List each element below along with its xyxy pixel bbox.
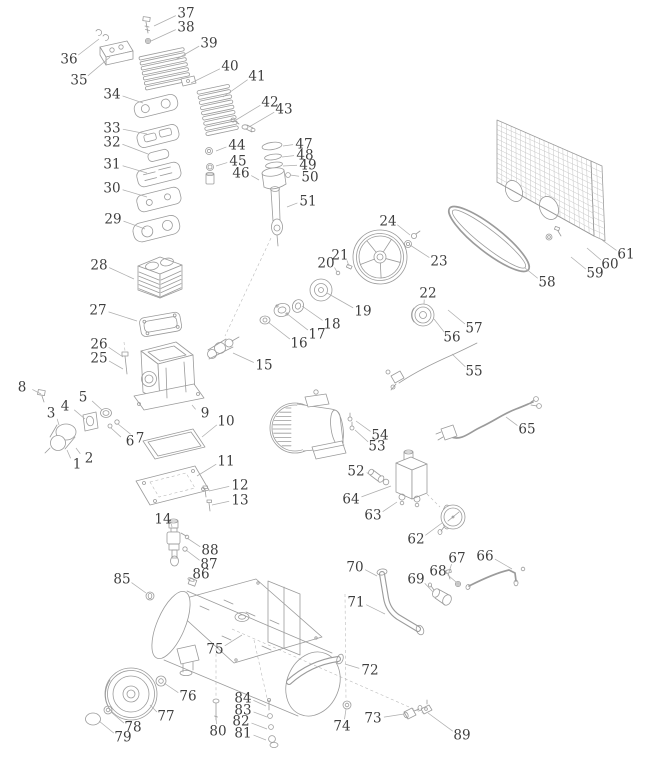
part-number-54: 54 [371, 428, 388, 444]
leader-line-27 [109, 312, 137, 321]
part-number-41: 41 [248, 69, 265, 85]
nuts-44-45-46 [206, 148, 215, 185]
part-number-80: 80 [209, 724, 226, 740]
part-number-73: 73 [364, 711, 381, 727]
leader-line-76 [164, 683, 178, 693]
leader-line-35 [88, 57, 110, 76]
part-number-43: 43 [275, 102, 292, 118]
part-number-29: 29 [104, 212, 121, 228]
leader-line-7 [118, 424, 131, 434]
part-number-51: 51 [299, 194, 316, 210]
part-number-24: 24 [379, 214, 396, 230]
leader-line-30 [123, 190, 147, 197]
part-number-71: 71 [347, 595, 364, 611]
part-number-22: 22 [419, 286, 436, 302]
part-number-3: 3 [47, 406, 56, 422]
leader-line-15 [233, 353, 254, 362]
leader-line-89 [428, 713, 453, 731]
part-number-76: 76 [179, 689, 196, 705]
part-number-67: 67 [448, 551, 465, 567]
valve-plate-30 [135, 186, 182, 213]
drain-valve-73-89 [403, 700, 432, 719]
pressure-switch-63 [396, 450, 427, 507]
leader-line-84 [253, 700, 266, 706]
leader-line-71 [366, 605, 385, 614]
part-number-12: 12 [231, 478, 248, 494]
part-number-58: 58 [538, 275, 555, 291]
diagram-canvas: 1234567891011121314151617181920212223242… [0, 0, 656, 768]
leader-line-81 [254, 735, 266, 740]
part-number-61: 61 [617, 247, 634, 263]
leader-line-59 [571, 257, 586, 269]
leader-line-63 [383, 502, 397, 512]
part-number-64: 64 [342, 492, 359, 508]
motor-assembly [270, 390, 346, 459]
leader-line-82 [252, 723, 267, 729]
crankshaft-15 [208, 337, 240, 359]
leader-line-28 [109, 268, 134, 279]
leader-line-43 [249, 112, 274, 127]
part-number-23: 23 [430, 254, 447, 270]
part-number-40: 40 [221, 59, 238, 75]
check-valve-69 [428, 583, 453, 607]
leader-line-13 [212, 501, 229, 505]
part-number-31: 31 [103, 157, 120, 173]
part-number-38: 38 [177, 20, 194, 36]
part-number-57: 57 [465, 321, 482, 337]
leader-line-25 [109, 361, 123, 369]
leader-line-50 [290, 175, 299, 176]
part-number-28: 28 [90, 258, 107, 274]
part-number-33: 33 [103, 121, 120, 137]
leader-line-23 [410, 245, 429, 258]
part-number-10: 10 [217, 414, 234, 430]
cylinder-28 [138, 257, 182, 298]
clips-36 [96, 30, 109, 41]
belt-guard-59 [497, 120, 605, 241]
part-number-44: 44 [228, 138, 245, 154]
part-number-87: 87 [200, 557, 217, 573]
leader-line-45 [216, 163, 227, 166]
leader-line-5 [92, 401, 102, 410]
leader-line-51 [287, 203, 297, 207]
part-number-9: 9 [201, 406, 210, 422]
leader-line-68 [447, 575, 456, 582]
part-number-7: 7 [136, 431, 145, 447]
leader-line-49 [283, 165, 297, 166]
leader-line-47 [283, 145, 293, 146]
part-number-55: 55 [465, 364, 482, 380]
leader-line-12 [209, 486, 229, 491]
wheel-77 [105, 668, 157, 720]
gasket-plate-34 [133, 93, 180, 119]
hub-19 [310, 279, 332, 301]
base-plate-11 [136, 466, 209, 505]
part-number-25: 25 [90, 351, 107, 367]
part-number-6: 6 [126, 434, 135, 450]
leader-line-6 [111, 428, 121, 437]
valve-plate-31 [135, 161, 182, 188]
part-number-18: 18 [323, 317, 340, 333]
part-number-32: 32 [103, 135, 120, 151]
part-number-70: 70 [346, 560, 363, 576]
exploded-view-svg: 1234567891011121314151617181920212223242… [0, 0, 656, 768]
leader-line-53 [355, 430, 368, 442]
leader-line-18 [302, 306, 323, 320]
leader-line-48 [282, 156, 294, 157]
part-number-72: 72 [361, 663, 378, 679]
gasket-27 [139, 311, 183, 337]
bolts-25-26 [122, 342, 128, 374]
bolt-and-washer-37-38 [143, 17, 151, 44]
motor-bolts-53-54 [348, 413, 354, 430]
leader-line-85 [132, 583, 146, 593]
part-number-34: 34 [103, 87, 120, 103]
leader-line-88 [187, 538, 200, 547]
leader-line-36 [78, 39, 99, 55]
part-number-16: 16 [290, 336, 307, 352]
part-number-85: 85 [113, 572, 130, 588]
leader-line-61 [602, 240, 616, 250]
part-number-46: 46 [232, 166, 249, 182]
leader-line-38 [151, 30, 176, 41]
part-number-21: 21 [331, 248, 348, 264]
part-number-60: 60 [601, 257, 618, 273]
part-number-88: 88 [201, 543, 218, 559]
part-number-19: 19 [354, 304, 371, 320]
labels-layer: 1234567891011121314151617181920212223242… [18, 6, 635, 746]
leader-line-65 [506, 417, 517, 426]
leader-line-79 [99, 721, 114, 733]
part-number-74: 74 [333, 719, 350, 735]
leader-line-3 [57, 419, 59, 425]
part-number-89: 89 [453, 728, 470, 744]
leader-line-57 [448, 310, 465, 324]
part-number-56: 56 [443, 330, 460, 346]
leader-line-87 [186, 550, 200, 560]
leg-bracket [177, 645, 199, 676]
part-number-26: 26 [90, 337, 107, 353]
part-number-13: 13 [231, 493, 248, 509]
leader-line-72 [345, 664, 359, 668]
leader-line-1 [67, 450, 71, 458]
leader-line-11 [197, 464, 216, 476]
leader-line-19 [327, 293, 353, 308]
part-number-30: 30 [103, 181, 120, 197]
part-number-39: 39 [200, 36, 217, 52]
leader-line-46 [251, 176, 259, 180]
fitting-52 [367, 468, 388, 485]
cylinder-head-41 [197, 84, 239, 136]
leader-line-60 [587, 248, 601, 260]
leader-line-2 [76, 448, 80, 454]
part-number-8: 8 [18, 380, 27, 396]
leader-line-17 [286, 313, 308, 330]
leader-line-20 [335, 267, 337, 272]
leader-line-26 [109, 347, 123, 357]
part-number-62: 62 [407, 532, 424, 548]
part-number-50: 50 [301, 170, 318, 186]
part-number-36: 36 [60, 52, 77, 68]
parts-layer [38, 17, 605, 748]
leader-line-70 [365, 570, 377, 576]
leader-line-83 [254, 712, 267, 717]
part-number-77: 77 [157, 709, 174, 725]
part-number-11: 11 [217, 454, 234, 470]
outlet-pipe-66 [465, 567, 525, 590]
gasket-32 [147, 148, 170, 162]
part-number-5: 5 [79, 390, 88, 406]
axle-bolt-80 [213, 699, 219, 720]
leader-line-4 [74, 410, 85, 419]
flange-17 [273, 302, 292, 319]
flywheel-20 [353, 230, 407, 284]
leader-line-54 [356, 421, 370, 431]
part-number-27: 27 [89, 303, 106, 319]
leader-line-10 [202, 425, 217, 437]
key-and-washer-20-21 [336, 264, 352, 275]
part-number-52: 52 [347, 464, 364, 480]
leader-line-73 [384, 714, 404, 717]
leader-line-9 [192, 405, 196, 409]
leader-line-66 [495, 559, 512, 569]
part-number-35: 35 [70, 73, 87, 89]
part-number-15: 15 [255, 358, 272, 374]
leader-line-24 [397, 225, 410, 235]
pressure-gauge-62 [438, 505, 465, 535]
part-number-2: 2 [85, 451, 94, 467]
leader-line-55 [452, 354, 465, 367]
idler-pulley-22 [411, 304, 434, 326]
part-number-63: 63 [364, 508, 381, 524]
part-number-66: 66 [476, 549, 493, 565]
valve-plate-33 [136, 123, 181, 149]
base-plate-10 [143, 429, 205, 459]
v-belt-58 [442, 198, 537, 280]
hose-55 [386, 343, 477, 390]
bracket-40 [181, 76, 196, 86]
crankcase-9 [134, 342, 204, 410]
part-number-14: 14 [154, 512, 171, 528]
part-number-68: 68 [429, 564, 446, 580]
part-number-84: 84 [234, 691, 251, 707]
part-number-75: 75 [206, 642, 223, 658]
leader-line-40 [191, 69, 220, 83]
leader-line-64 [361, 486, 391, 497]
part-number-69: 69 [407, 572, 424, 588]
leader-line-34 [123, 96, 143, 103]
part-number-79: 79 [114, 730, 131, 746]
leader-line-37 [154, 16, 176, 26]
part-number-4: 4 [61, 399, 70, 415]
leader-line-58 [525, 268, 538, 278]
bearing-18 [291, 298, 306, 314]
part-number-65: 65 [518, 422, 535, 438]
part-number-1: 1 [73, 457, 82, 473]
bushing-23-bolt-24 [405, 231, 421, 248]
gasket-plate-29 [131, 214, 181, 244]
leader-line-16 [268, 322, 290, 339]
leader-line-42 [236, 105, 260, 120]
fittings-67-68 [446, 569, 461, 586]
leader-line-44 [216, 147, 226, 151]
